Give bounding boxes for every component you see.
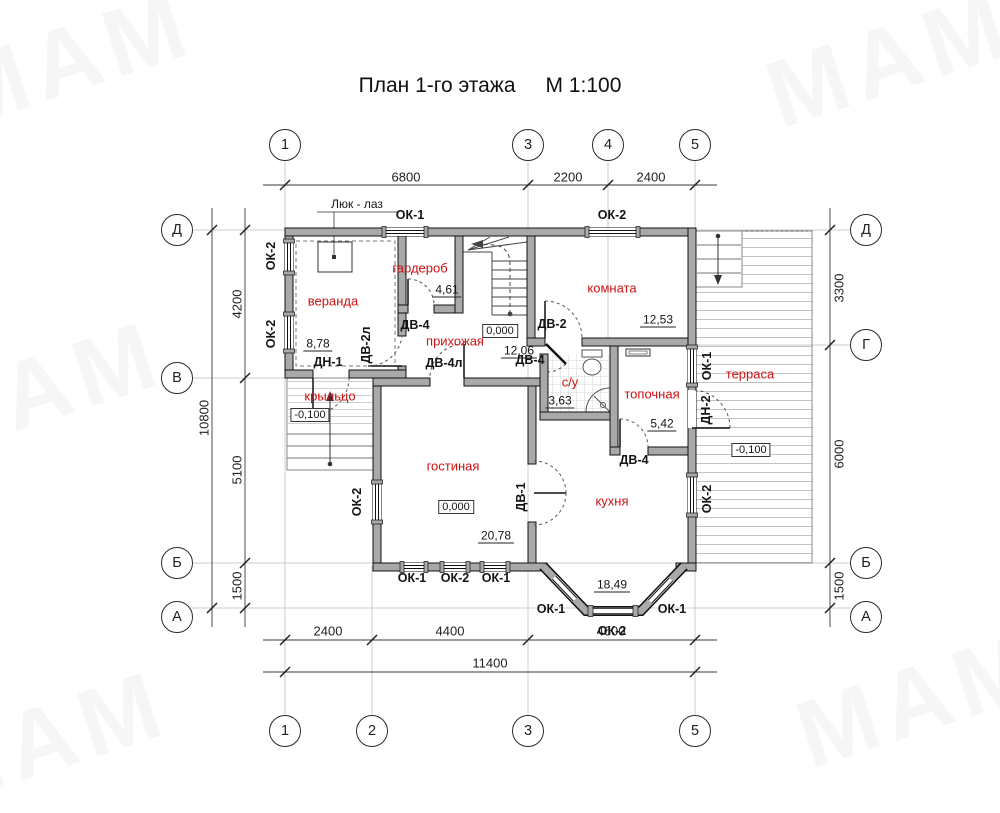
room-label-garderob: гардероб (392, 261, 447, 276)
hatch-annotation: Люк - лаз (331, 197, 383, 211)
axis-label: 5 (691, 137, 699, 153)
window-label-ok2: ОК-2 (264, 242, 278, 270)
axis-bubble-right-b: Б (850, 547, 882, 579)
floor-plan-sheet: МАМ МАМ МАМ МАМ МАМ План 1-го этажа М 1:… (0, 0, 1000, 813)
window-label-ok1: ОК-1 (396, 208, 424, 222)
room-area-kuhnya: 18,49 (594, 578, 630, 593)
axis-bubble-top-3: 3 (512, 129, 544, 161)
room-area-su: 3,63 (545, 394, 574, 409)
window-label-ok2: ОК-2 (598, 624, 626, 638)
axis-label: 3 (524, 137, 532, 153)
room-label-terrasa: терраса (726, 367, 774, 382)
door-label-dv2l: ДВ-2л (359, 327, 373, 364)
window-label-ok1: ОК-1 (537, 602, 565, 616)
axis-bubble-bottom-1: 1 (269, 715, 301, 747)
axis-label: Г (862, 337, 870, 353)
axis-label: 4 (604, 137, 612, 153)
door-label-dv4: ДВ-4 (515, 353, 544, 367)
elevation-minus-terrace: -0,100 (731, 443, 770, 457)
window-label-ok1: ОК-1 (482, 571, 510, 585)
window-label-ok2: ОК-2 (700, 485, 714, 513)
dim-left-d-v: 4200 (230, 290, 245, 319)
axis-label: Б (172, 555, 182, 571)
axis-label: 1 (281, 137, 289, 153)
room-label-su: с/у (562, 375, 579, 390)
axis-label: А (861, 609, 871, 625)
window-label-ok1: ОК-1 (658, 602, 686, 616)
room-label-topochnaya: топочная (624, 387, 679, 402)
axis-label: 3 (524, 723, 532, 739)
axis-label: А (172, 609, 182, 625)
door-label-dn1: ДН-1 (313, 355, 342, 369)
toilet-bowl (583, 359, 601, 375)
toilet-tank (582, 350, 602, 357)
door-label-dv4l: ДВ-4л (426, 356, 463, 370)
room-label-prihozhaya: прихожая (426, 334, 484, 349)
window-label-ok2: ОК-2 (598, 208, 626, 222)
door-label-dv1: ДВ-1 (514, 482, 528, 511)
axis-bubble-left-a: А (161, 601, 193, 633)
room-area-komnata: 12,53 (640, 313, 676, 328)
dim-right-g-b: 6000 (832, 440, 847, 469)
dim-left-v-b: 5100 (230, 456, 245, 485)
room-area-gostinaya: 20,78 (478, 529, 514, 544)
title-text: План 1-го этажа (359, 74, 516, 98)
axis-bubble-bottom-3: 3 (512, 715, 544, 747)
door-label-dv2: ДВ-2 (537, 317, 566, 331)
window-label-ok2: ОК-2 (350, 488, 364, 516)
axis-label: Б (861, 555, 871, 571)
dim-bottom-total: 11400 (472, 656, 507, 671)
axis-bubble-left-d: Д (161, 214, 193, 246)
axis-bubble-right-g: Г (850, 329, 882, 361)
dim-left-total: 10800 (197, 400, 212, 436)
axis-bubble-right-d: Д (850, 214, 882, 246)
axis-bubble-left-b: Б (161, 547, 193, 579)
axis-label: Д (172, 222, 182, 238)
axis-bubble-bottom-2: 2 (356, 715, 388, 747)
window-label-ok1: ОК-1 (398, 571, 426, 585)
room-label-komnata: комната (587, 281, 636, 296)
axis-bubble-right-a: А (850, 601, 882, 633)
window-label-ok2: ОК-2 (441, 571, 469, 585)
room-area-garderob: 4,61 (432, 283, 461, 298)
door-label-dv4: ДВ-4 (400, 318, 429, 332)
dim-left-b-a: 1500 (230, 572, 245, 601)
axis-bubble-top-1: 1 (269, 129, 301, 161)
boiler-symbol (626, 349, 650, 356)
axis-bubble-left-v: В (161, 362, 193, 394)
door-label-dv4: ДВ-4 (619, 453, 648, 467)
dim-bottom-2-3: 4400 (436, 624, 465, 639)
elevation-zero-living: 0,000 (438, 500, 474, 514)
drawing-title: План 1-го этажа М 1:100 (359, 74, 622, 98)
dim-bottom-1-2: 2400 (314, 624, 343, 639)
room-label-veranda: веранда (308, 294, 358, 309)
room-label-gostinaya: гостиная (427, 459, 480, 474)
dim-right-b-a: 1500 (832, 572, 847, 601)
window-label-ok2: ОК-2 (264, 320, 278, 348)
axis-label: 1 (281, 723, 289, 739)
dim-top-4-5: 2400 (637, 170, 666, 185)
dim-top-1-3: 6800 (392, 170, 421, 185)
axis-bubble-bottom-5: 5 (679, 715, 711, 747)
room-label-krylco: крыльцо (304, 389, 355, 404)
window-label-ok1: ОК-1 (700, 352, 714, 380)
axis-bubble-top-4: 4 (592, 129, 624, 161)
axis-bubble-top-5: 5 (679, 129, 711, 161)
title-scale: М 1:100 (546, 74, 622, 98)
main-staircase (463, 237, 527, 316)
elevation-zero-hall: 0,000 (482, 324, 518, 338)
room-label-kuhnya: кухня (595, 494, 628, 509)
dim-top-3-4: 2200 (554, 170, 583, 185)
axis-label: В (172, 370, 182, 386)
axis-label: 5 (691, 723, 699, 739)
door-label-dn2: ДН-2 (699, 395, 713, 424)
axis-label: 2 (368, 723, 376, 739)
room-area-veranda: 8,78 (303, 337, 332, 352)
dim-right-d-g: 3300 (832, 274, 847, 303)
elevation-minus-porch: -0,100 (290, 408, 329, 422)
axis-label: Д (861, 222, 871, 238)
room-area-topochnaya: 5,42 (647, 417, 676, 432)
